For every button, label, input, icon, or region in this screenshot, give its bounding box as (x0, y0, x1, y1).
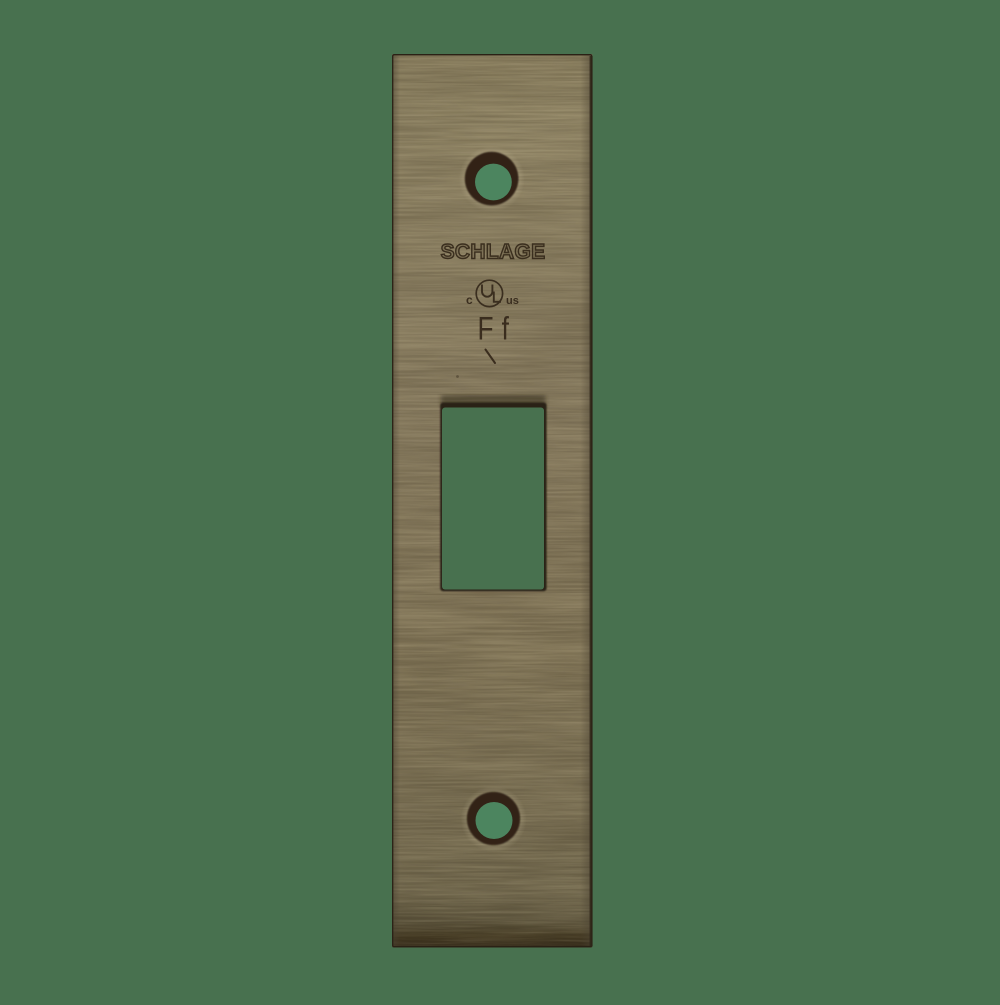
svg-text:SCHLAGE: SCHLAGE (441, 241, 546, 264)
svg-text:c: c (466, 293, 473, 307)
svg-text:us: us (506, 295, 519, 307)
